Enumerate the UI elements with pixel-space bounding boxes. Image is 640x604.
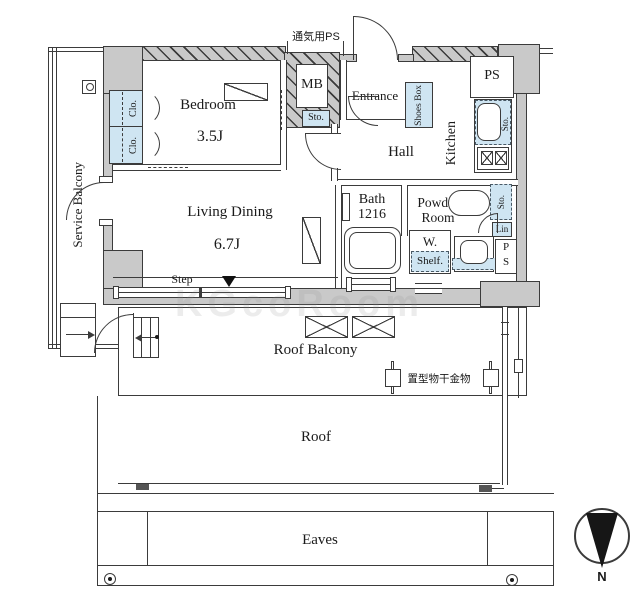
pipe-tick — [501, 334, 509, 335]
toilet-bowl — [460, 240, 488, 264]
right-wall-column — [516, 93, 527, 307]
washer-label: W. — [409, 234, 451, 250]
laundry-fixture-label: 置型物干金物 — [402, 371, 476, 386]
stove-burner — [495, 151, 507, 165]
corner-wall — [103, 46, 143, 95]
bath-left-wall — [335, 185, 342, 288]
bedroom-size: 3.5J — [186, 128, 234, 146]
closet-1-divider — [122, 92, 123, 125]
window-end-cap — [113, 286, 119, 299]
eaves-top-line — [97, 511, 554, 512]
site-boundary-right — [553, 511, 554, 586]
vent-pipe — [518, 307, 519, 398]
anchor-bolt-center — [510, 578, 514, 582]
eaves-inner-edge — [487, 511, 488, 565]
equipment-line — [60, 317, 96, 318]
bedroom-ac-unit — [224, 83, 268, 101]
watermark: KGcoRoom — [175, 283, 424, 326]
roof-label: Roof — [288, 429, 344, 446]
site-boundary-bottom — [97, 585, 554, 586]
closet-1-door-arc — [126, 91, 160, 125]
powder-storage-label: Sto. — [496, 195, 506, 209]
ps-top-label: PS — [470, 68, 514, 84]
ps-shaft-label-s: S — [495, 256, 517, 268]
balcony-rail-line — [48, 47, 49, 348]
arrow-right-icon — [88, 331, 95, 339]
bottom-right-wall-block — [480, 281, 540, 307]
balcony-rail-line — [52, 47, 53, 348]
vent-pipe-joint — [514, 359, 523, 373]
eaves-inner-edge — [147, 511, 148, 565]
entrance-top-wall-right — [398, 54, 414, 62]
eaves-label: Eaves — [292, 532, 348, 549]
bath-fixture — [342, 193, 350, 221]
pipe-tick — [501, 322, 509, 323]
bedroom-wall-opening — [281, 90, 282, 130]
shoes-box-label-wrap: Shoes Box — [405, 82, 433, 128]
pipe-elbow — [492, 488, 504, 489]
stove-burner — [481, 151, 493, 165]
vent-ps-leader — [287, 41, 288, 54]
living-size: 6.7J — [203, 236, 251, 254]
compass-needle-icon — [586, 513, 618, 568]
kitchen-label-wrap: Kitchen — [442, 110, 462, 176]
balcony-rail-line — [48, 51, 104, 52]
kitchen-storage-label: Sto. — [500, 117, 510, 131]
roof-drain-tick — [479, 485, 492, 492]
powder-sink — [448, 190, 490, 216]
laundry-pole-holder — [483, 369, 499, 387]
balcony-rail-line — [48, 47, 104, 48]
compass-north-label: N — [594, 569, 610, 584]
floor-plan: MB Sto. 通気用PS Bedroom 3.5J Clo. Clo. Ser… — [0, 0, 640, 604]
bath-name: Bath — [350, 192, 394, 208]
living-name: Living Dining — [160, 204, 300, 221]
equipment-arrow-line — [66, 334, 88, 335]
bath-size: 1216 — [350, 207, 394, 223]
roof-bottom-line-inner — [118, 483, 500, 484]
kitchen-label: Kitchen — [444, 121, 460, 165]
hall-label: Hall — [375, 144, 427, 161]
anchor-bolt-center — [108, 577, 112, 581]
laundry-pole-holder — [385, 369, 401, 387]
shoes-box-label: Shoes Box — [414, 85, 424, 126]
equipment-box — [60, 303, 96, 357]
ps-shaft-label-p: P — [495, 241, 517, 253]
closet-2-door-arc — [126, 127, 160, 161]
closet-2-divider — [122, 128, 123, 162]
pipe-stub — [540, 48, 553, 54]
balcony-rail-line — [56, 47, 57, 348]
bedroom-floor-opening — [148, 167, 188, 168]
bedroom-bottom-wall — [113, 164, 281, 171]
bathtub-inner — [349, 232, 396, 269]
roof-balcony-label: Roof Balcony — [258, 342, 373, 359]
roof-bottom-line-outer — [97, 493, 554, 494]
balcony-faucet-knob — [86, 83, 94, 91]
eaves-bottom-line — [97, 565, 554, 566]
living-ac-unit — [302, 217, 321, 264]
site-boundary-left — [97, 396, 98, 586]
shelf-label: Shelf. — [411, 255, 449, 267]
roof-drain-tick — [136, 484, 149, 490]
kitchen-storage-label-wrap: Sto. — [498, 106, 511, 142]
